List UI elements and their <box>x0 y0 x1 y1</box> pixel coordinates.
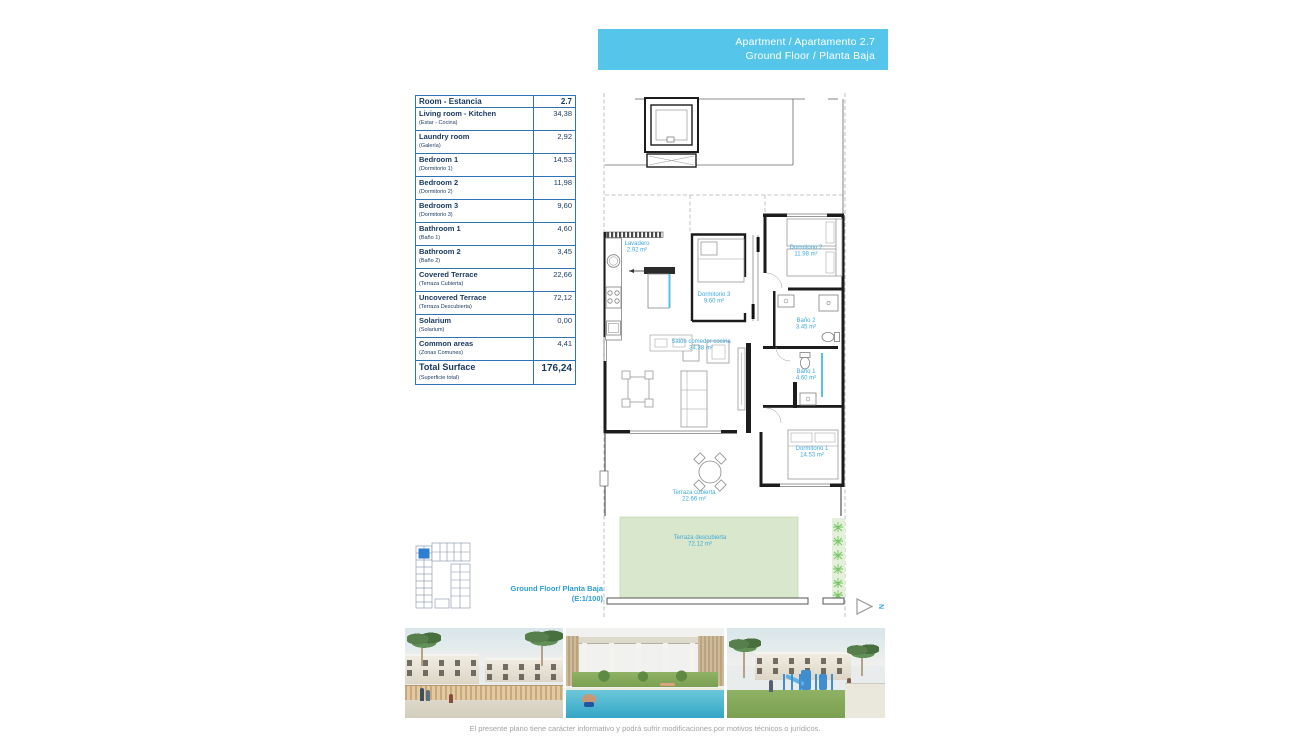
row-name: Bedroom 2 <box>419 178 530 187</box>
table-row: Bathroom 2(Baño 2) 3,45 <box>416 246 576 269</box>
row-name: Laundry room <box>419 132 530 141</box>
corridor-doors <box>752 235 760 321</box>
row-sub: (Dormitorio 1) <box>419 166 530 173</box>
title-banner: Apartment / Apartamento 2.7 Ground Floor… <box>598 29 888 70</box>
kitchen-fixtures <box>606 238 622 340</box>
floor-scale-label: Ground Floor/ Planta Baja (E:1/100) <box>468 584 603 603</box>
label-salon-area: 34.38 m² <box>689 346 713 352</box>
label-lavadero-area: 2.92 m² <box>627 248 647 254</box>
total-sub: (Superficie total) <box>419 375 530 382</box>
label-bano1-area: 4.60 m² <box>796 376 816 382</box>
table-total-row: Total Surface(Superficie total) 176,24 <box>416 361 576 385</box>
table-row: Bathroom 1(Baño 1) 4,60 <box>416 223 576 246</box>
row-sub: (Baño 1) <box>419 235 530 242</box>
row-sub: (Terraza Cubierta) <box>419 281 530 288</box>
table-row: Solarium(Solarium) 0,00 <box>416 315 576 338</box>
row-value: 3,45 <box>537 247 572 256</box>
row-name: Living room - Kitchen <box>419 109 530 118</box>
row-sub: (Zonas Comunes) <box>419 350 530 357</box>
pavement-edge <box>607 598 844 604</box>
row-sub: (Dormitorio 3) <box>419 212 530 219</box>
north-arrow-icon: N <box>857 599 884 614</box>
table-row: Covered Terrace(Terraza Cubierta) 22,66 <box>416 269 576 292</box>
table-row: Laundry room(Galería) 2,92 <box>416 131 576 154</box>
person-shape <box>420 688 424 701</box>
floor-plan: N Lavadero 2.92 m² Dormitorio 2 11.98 m²… <box>595 85 895 625</box>
row-value: 4,60 <box>537 224 572 233</box>
row-name: Solarium <box>419 316 530 325</box>
swim-shorts-shape <box>584 702 594 707</box>
row-value: 34,38 <box>537 109 572 118</box>
label-dormitorio1-area: 14.53 m² <box>800 453 824 459</box>
label-lavadero: Lavadero <box>624 241 650 247</box>
label-dormitorio3: Dormitorio 3 <box>698 292 731 298</box>
row-sub: (Solarium) <box>419 327 530 334</box>
row-name: Common areas <box>419 339 530 348</box>
row-value: 14,53 <box>537 155 572 164</box>
common-zone-lines <box>605 99 843 215</box>
lavadero-hatched-wall <box>605 232 663 238</box>
areas-table: Room - Estancia 2.7 Living room - Kitche… <box>415 95 576 385</box>
playground-posts-shape <box>783 674 833 690</box>
row-value: 9,60 <box>537 201 572 210</box>
palm-tree-shape <box>525 628 563 648</box>
render-photo-pool <box>566 628 724 718</box>
table-header-label: Room - Estancia <box>419 97 530 106</box>
label-dormitorio3-area: 9.60 m² <box>704 299 724 305</box>
palm-tree-shape <box>729 636 761 654</box>
label-terraza-cubierta: Terraza cubierta <box>672 490 716 496</box>
bush-shape <box>596 670 612 682</box>
row-name: Bedroom 1 <box>419 155 530 164</box>
label-salon: Salón comedor cocina <box>671 339 731 345</box>
ground-shape <box>405 700 563 718</box>
living-room-furniture <box>622 335 745 427</box>
row-name: Uncovered Terrace <box>419 293 530 302</box>
row-sub: (Dormitorio 2) <box>419 189 530 196</box>
row-name: Bedroom 3 <box>419 201 530 210</box>
row-value: 0,00 <box>537 316 572 325</box>
row-value: 22,66 <box>537 270 572 279</box>
row-sub: (Terraza Descubierta) <box>419 304 530 311</box>
bedroom3-bed <box>698 239 744 282</box>
render-photo-exterior <box>405 628 563 718</box>
table-header-row: Room - Estancia 2.7 <box>416 96 576 108</box>
palm-tree-shape <box>847 642 879 660</box>
table-row: Bedroom 1(Dormitorio 1) 14,53 <box>416 154 576 177</box>
building-shape <box>405 654 479 684</box>
row-sub: (Estar - Cocina) <box>419 120 530 127</box>
table-row: Bedroom 2(Dormitorio 2) 11,98 <box>416 177 576 200</box>
label-dormitorio2: Dormitorio 2 <box>790 245 823 251</box>
table-header-value: 2.7 <box>534 96 576 108</box>
row-value: 72,12 <box>537 293 572 302</box>
label-terraza-cubierta-area: 22.66 m² <box>682 497 706 503</box>
row-value: 2,92 <box>537 132 572 141</box>
row-name: Bathroom 1 <box>419 224 530 233</box>
row-name: Covered Terrace <box>419 270 530 279</box>
stair-elevator-core <box>645 98 698 167</box>
total-name: Total Surface <box>419 362 530 373</box>
total-value: 176,24 <box>537 362 572 376</box>
table-row: Living room - Kitchen(Estar - Cocina) 34… <box>416 108 576 131</box>
floor-label-line1: Ground Floor/ Planta Baja <box>468 584 603 594</box>
banner-apartment-line: Apartment / Apartamento 2.7 <box>598 36 875 50</box>
banner-floor-line: Ground Floor / Planta Baja <box>598 50 875 64</box>
person-shape <box>769 680 773 692</box>
label-dormitorio2-area: 11.98 m² <box>794 252 817 258</box>
label-dormitorio1: Dormitorio 1 <box>796 446 829 452</box>
render-photos <box>405 628 885 718</box>
building-shape <box>485 658 563 682</box>
sunbather-shape <box>660 683 675 686</box>
person-shape <box>449 694 453 703</box>
kitchen-island <box>629 267 675 308</box>
north-letter: N <box>877 604 884 609</box>
label-bano1: Baño 1 <box>796 369 816 375</box>
disclaimer-text: El presente plano tiene carácter informa… <box>405 724 885 733</box>
bush-shape <box>674 670 689 682</box>
row-sub: (Galería) <box>419 143 530 150</box>
floor-label-line2: (E:1/100) <box>468 594 603 604</box>
planting-strip <box>832 518 845 600</box>
low-wall-shape <box>845 683 885 718</box>
label-bano2: Baño 2 <box>796 318 816 324</box>
person-shape <box>426 690 430 701</box>
key-plan <box>413 538 475 616</box>
table-row: Bedroom 3(Dormitorio 3) 9,60 <box>416 200 576 223</box>
table-row: Uncovered Terrace(Terraza Descubierta) 7… <box>416 292 576 315</box>
bush-shape <box>636 671 650 682</box>
key-plan-highlighted-unit <box>419 549 430 559</box>
terrace-table-set <box>694 453 726 491</box>
label-terraza-descubierta: Terraza descubierta <box>674 535 727 541</box>
render-photo-playground <box>727 628 885 718</box>
uncovered-terrace-area <box>620 517 798 600</box>
label-bano2-area: 3.45 m² <box>796 325 816 331</box>
row-value: 4,41 <box>537 339 572 348</box>
palm-tree-shape <box>407 630 441 650</box>
gym-interior-shape <box>582 643 698 673</box>
row-value: 11,98 <box>537 178 572 187</box>
plan-sheet: Apartment / Apartamento 2.7 Ground Floor… <box>0 0 1290 755</box>
table-row: Common areas(Zonas Comunes) 4,41 <box>416 338 576 361</box>
row-sub: (Baño 2) <box>419 258 530 265</box>
row-name: Bathroom 2 <box>419 247 530 256</box>
label-terraza-descubierta-area: 72.12 m² <box>688 542 712 548</box>
